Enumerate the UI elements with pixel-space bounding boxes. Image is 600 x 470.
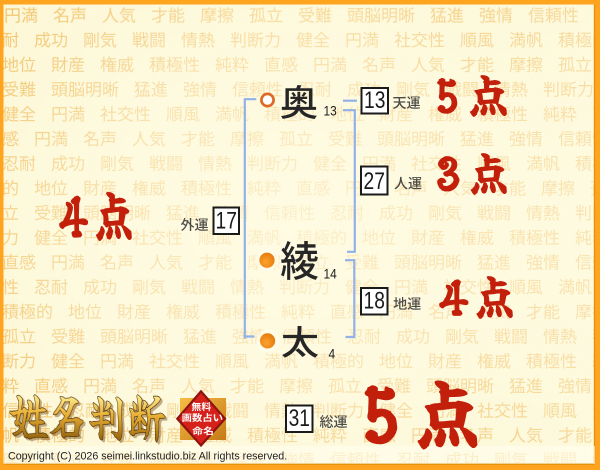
svg-text:4: 4	[329, 346, 336, 362]
svg-text:13: 13	[364, 86, 385, 114]
svg-text:27: 27	[364, 167, 385, 195]
svg-text:18: 18	[364, 286, 385, 314]
svg-text:17: 17	[216, 206, 237, 234]
svg-text:13: 13	[324, 103, 337, 119]
svg-text:14: 14	[324, 266, 337, 282]
svg-text:31: 31	[289, 404, 310, 432]
svg-text:Copyright (C) 2026 seimei.link: Copyright (C) 2026 seimei.linkstudio.biz…	[8, 451, 287, 463]
